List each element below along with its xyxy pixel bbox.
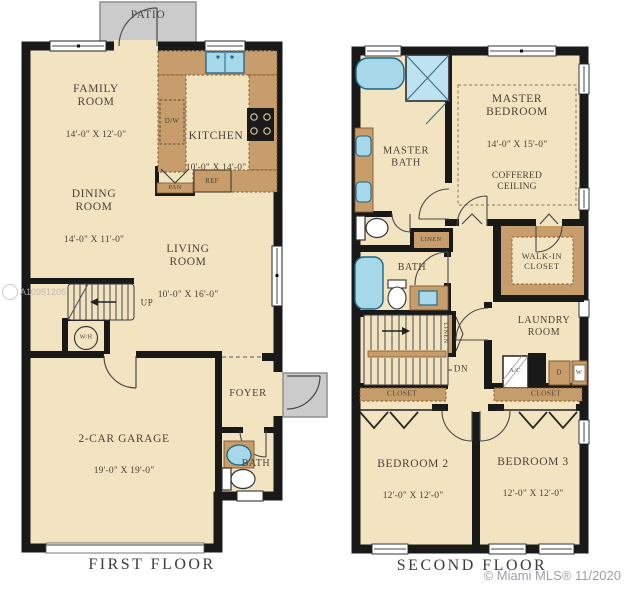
bath2-sink-icon xyxy=(419,291,437,305)
dining-room-name: DINING ROOM xyxy=(64,188,124,215)
dryer-label: D xyxy=(556,369,562,378)
refrigerator-label: REF xyxy=(205,177,219,185)
bath2-tub-icon xyxy=(355,257,383,309)
stairs-down-label: DN xyxy=(454,364,468,375)
bath2-label: BATH xyxy=(398,262,427,274)
master-bedroom-name: MASTER BEDROOM xyxy=(486,93,548,120)
living-room-dims: 10'-0" X 16'-0" xyxy=(158,290,219,301)
closet-b3-label: CLOSET xyxy=(531,390,561,399)
stove-icon xyxy=(247,108,274,141)
first-floor-caption: FIRST FLOOR xyxy=(88,556,215,574)
bedroom2-label: BEDROOM 2 12'-0" X 12'-0" xyxy=(377,439,449,521)
patio-door-opening xyxy=(114,40,158,52)
bath1-label: BATH xyxy=(242,458,271,470)
kitchen-name: KITCHEN xyxy=(186,130,247,144)
dining-room-label: DINING ROOM 14'-0" X 11'-0" xyxy=(64,169,124,265)
master-tub-icon xyxy=(356,58,404,89)
bath2-toilet-icon xyxy=(388,287,406,309)
bedroom2-name: BEDROOM 2 xyxy=(377,458,449,472)
stairs-up-label: UP xyxy=(141,298,154,309)
ac-label: A/C xyxy=(509,367,521,375)
family-room-dims: 14'-0" X 12'-0" xyxy=(66,130,127,141)
family-room-name: FAMILY ROOM xyxy=(66,83,127,110)
dishwasher-label: D/W xyxy=(165,117,180,125)
bedroom3-name: BEDROOM 3 xyxy=(497,456,569,470)
living-room-name: LIVING ROOM xyxy=(158,243,219,270)
master-bedroom-note: COFFERED CEILING xyxy=(486,171,548,193)
closet-b2-label: CLOSET xyxy=(387,390,417,399)
floorplan-page: PATIO FAMILY ROOM 14'-0" X 12'-0" KITCHE… xyxy=(0,0,627,590)
foyer-label: FOYER xyxy=(229,388,266,400)
pantry-label: PAN xyxy=(168,184,181,192)
linen-upper-label: LINEN xyxy=(421,236,442,244)
master-sink1-icon xyxy=(356,136,371,156)
washer-label: W xyxy=(576,369,582,377)
family-room-label: FAMILY ROOM 14'-0" X 12'-0" xyxy=(66,64,127,160)
laundry-room-label: LAUNDRY ROOM xyxy=(518,315,571,339)
master-bedroom-label: MASTER BEDROOM 14'-0" X 15'-0" COFFERED … xyxy=(486,74,548,212)
stairs-first-floor xyxy=(68,284,134,320)
bedroom2-dims: 12'-0" X 12'-0" xyxy=(377,491,449,502)
patio-label: PATIO xyxy=(131,9,166,23)
garage-label: 2-CAR GARAGE 19'-0" X 19'-0" xyxy=(78,414,169,496)
master-sink2-icon xyxy=(356,182,371,202)
mls-credit-watermark: © Miami MLS® 11/2020 xyxy=(484,568,621,583)
walk-in-closet-label: WALK-IN CLOSET xyxy=(522,251,563,271)
master-bath-label: MASTER BATH xyxy=(383,146,429,171)
bath1-toilet-icon xyxy=(222,468,255,490)
master-toilet-icon xyxy=(366,219,388,238)
living-room-label: LIVING ROOM 10'-0" X 16'-0" xyxy=(158,224,219,320)
dining-room-dims: 14'-0" X 11'-0" xyxy=(64,235,124,246)
mls-watermark: A10951205 xyxy=(2,284,66,300)
mls-listing-id: A10951205 xyxy=(20,287,66,297)
entry-door-opening xyxy=(272,372,284,416)
master-toilet-tank xyxy=(356,216,365,240)
master-bedroom-dims: 14'-0" X 15'-0" xyxy=(486,140,548,151)
kitchen-dims: 10'-0" X 14'-0" xyxy=(186,163,247,174)
bedroom3-dims: 12'-0" X 12'-0" xyxy=(497,489,569,500)
mls-logo-icon xyxy=(2,284,18,300)
stairs-second-floor xyxy=(364,315,452,385)
garage-name: 2-CAR GARAGE xyxy=(78,433,169,447)
garage-dims: 19'-0" X 19'-0" xyxy=(78,466,169,477)
water-heater-label: W/H xyxy=(80,334,93,341)
linen-lower-label: LINEN xyxy=(441,323,449,344)
bedroom3-label: BEDROOM 3 12'-0" X 12'-0" xyxy=(497,437,569,519)
